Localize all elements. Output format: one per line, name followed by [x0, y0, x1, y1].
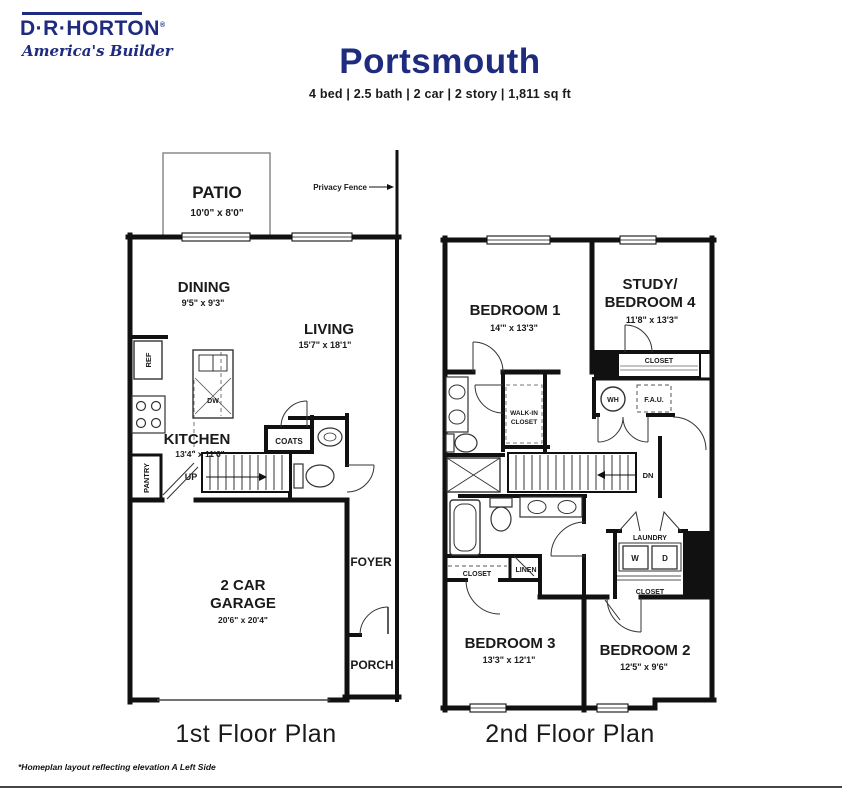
- bedroom1-label: BEDROOM 1: [470, 302, 561, 319]
- bed2-closet: CLOSET: [617, 576, 681, 596]
- living-dims: 15'7" x 18'1": [299, 340, 352, 350]
- up-label: UP: [185, 472, 198, 482]
- patio-label: PATIO: [192, 183, 241, 202]
- owner-bath-fixtures: [446, 377, 500, 492]
- garage-label-1: 2 CAR: [220, 577, 265, 594]
- walkin-label-1: WALK-IN: [510, 410, 538, 417]
- bed2-closet-label: CLOSET: [636, 589, 665, 596]
- garage-dims: 20'6" x 20'4": [218, 615, 268, 625]
- garage-label-2: GARAGE: [210, 595, 276, 612]
- dn-label: DN: [643, 471, 654, 480]
- floor1-interior-walls: [130, 337, 360, 700]
- refrigerator: REF: [134, 341, 162, 379]
- study-closet: CLOSET: [618, 353, 700, 377]
- foyer-label: FOYER: [350, 555, 392, 569]
- patio-dims: 10'0" x 8'0": [190, 208, 243, 219]
- first-floor-plan: PATIO 10'0" x 8'0" Privacy Fence: [128, 150, 399, 748]
- bedroom1-dims: 14'" x 13'3": [490, 323, 538, 333]
- floorplan-canvas: PATIO 10'0" x 8'0" Privacy Fence: [0, 0, 842, 792]
- privacy-fence: Privacy Fence: [313, 150, 397, 238]
- floor1-caption: 1st Floor Plan: [175, 720, 336, 748]
- washer-label: W: [631, 554, 639, 563]
- bedroom2-label: BEDROOM 2: [600, 642, 691, 659]
- bedroom3-dims: 13'3" x 12'1": [483, 655, 536, 665]
- bedroom2-dims: 12'5" x 9'6": [620, 662, 668, 672]
- laundry-label: LAUNDRY: [633, 535, 667, 542]
- kitchen-dims: 13'4" x 11'6": [175, 449, 224, 459]
- coats-label: COATS: [275, 437, 303, 446]
- bottom-divider: [0, 786, 842, 788]
- living-label: LIVING: [304, 321, 354, 338]
- pantry-label: PANTRY: [142, 463, 151, 493]
- dining-dims: 9'5" x 9'3": [182, 298, 225, 308]
- second-floor-plan: CLOSET WH F.A.U. WALK-IN CLOSET: [443, 236, 714, 748]
- footnote: *Homeplan layout reflecting elevation A …: [18, 762, 216, 772]
- dishwasher-label: DW: [207, 398, 219, 405]
- dryer-label: D: [662, 554, 668, 563]
- privacy-fence-label: Privacy Fence: [313, 183, 367, 192]
- water-heater: WH: [601, 387, 625, 411]
- ref-label: REF: [144, 352, 153, 367]
- walk-in-closet: WALK-IN CLOSET: [506, 385, 542, 443]
- walkin-label-2: CLOSET: [511, 419, 537, 426]
- wall-fill-study-closet: [594, 352, 618, 378]
- wall-fill-laundry: [683, 531, 712, 597]
- kitchen-island: DW: [193, 350, 233, 418]
- dining-label: DINING: [178, 279, 231, 296]
- study-dims: 11'8" x 13'3": [626, 315, 678, 325]
- floorplan-page: D·R·HORTON® America's Builder Portsmouth…: [0, 0, 842, 792]
- bed3-closet: CLOSET: [448, 566, 507, 578]
- study-label-1: STUDY/: [622, 276, 678, 293]
- fau-label: F.A.U.: [644, 397, 664, 404]
- study-closet-label: CLOSET: [645, 358, 674, 365]
- floor2-caption: 2nd Floor Plan: [485, 720, 655, 748]
- bedroom3-label: BEDROOM 3: [465, 635, 556, 652]
- range-cooktop: [132, 396, 165, 433]
- laundry-doors: [619, 512, 681, 531]
- porch-label: PORCH: [350, 658, 393, 672]
- bed3-closet-label: CLOSET: [463, 571, 492, 578]
- svg-text:WH: WH: [607, 397, 619, 404]
- fau-unit: F.A.U.: [637, 385, 671, 412]
- hall-bath-fixtures: [450, 497, 582, 555]
- stairs-down: DN: [508, 453, 653, 492]
- kitchen-label: KITCHEN: [164, 431, 231, 448]
- fence-arrow-icon: [387, 184, 394, 190]
- laundry-room: LAUNDRY W D: [619, 512, 681, 571]
- study-label-2: BEDROOM 4: [605, 294, 697, 311]
